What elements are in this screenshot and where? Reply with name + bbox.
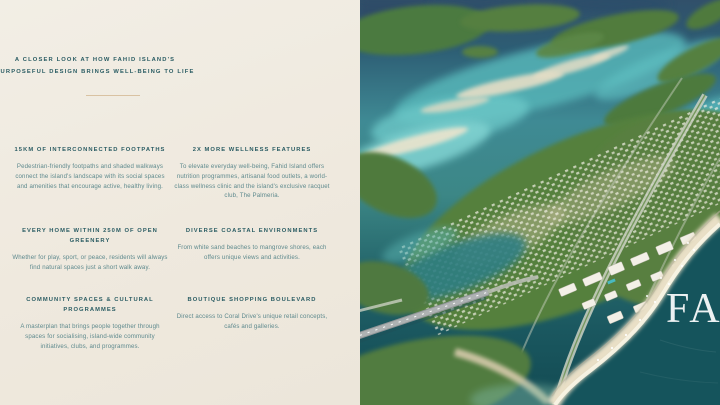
feature-heading: 15KM OF INTERCONNECTED FOOTPATHS [12,145,168,155]
feature-body: A masterplan that brings people together… [12,322,168,351]
aerial-island-image: FA [360,0,720,405]
feature-body: To elevate everyday well-being, Fahid Is… [174,162,330,201]
feature-coastal: DIVERSE COASTAL ENVIRONMENTS From white … [174,226,330,263]
watermark-text: FA [666,286,720,332]
brochure-page: A CLOSER LOOK AT HOW FAHID ISLAND'S PURP… [0,0,720,405]
feature-body: Whether for play, sport, or peace, resid… [12,253,168,273]
feature-body: From white sand beaches to mangrove shor… [174,243,330,263]
feature-heading: 2X MORE WELLNESS FEATURES [174,145,330,155]
feature-heading: BOUTIQUE SHOPPING BOULEVARD [174,295,330,305]
page-title: A CLOSER LOOK AT HOW FAHID ISLAND'S PURP… [0,54,230,78]
feature-heading: DIVERSE COASTAL ENVIRONMENTS [174,226,330,236]
title-divider [86,95,140,96]
feature-greenery: EVERY HOME WITHIN 250M OF OPEN GREENERY … [12,226,168,273]
feature-body: Pedestrian-friendly footpaths and shaded… [12,162,168,191]
feature-body: Direct access to Coral Drive's unique re… [174,312,330,332]
page-title-line2: PURPOSEFUL DESIGN BRINGS WELL-BEING TO L… [0,66,230,78]
feature-wellness: 2X MORE WELLNESS FEATURES To elevate eve… [174,145,330,201]
feature-heading: EVERY HOME WITHIN 250M OF OPEN GREENERY [12,226,168,246]
feature-community: COMMUNITY SPACES & CULTURAL PROGRAMMES A… [12,295,168,351]
text-panel: A CLOSER LOOK AT HOW FAHID ISLAND'S PURP… [0,0,360,405]
feature-shopping: BOUTIQUE SHOPPING BOULEVARD Direct acces… [174,295,330,332]
feature-heading: COMMUNITY SPACES & CULTURAL PROGRAMMES [12,295,168,315]
page-title-line1: A CLOSER LOOK AT HOW FAHID ISLAND'S [0,54,230,66]
feature-footpaths: 15KM OF INTERCONNECTED FOOTPATHS Pedestr… [12,145,168,191]
